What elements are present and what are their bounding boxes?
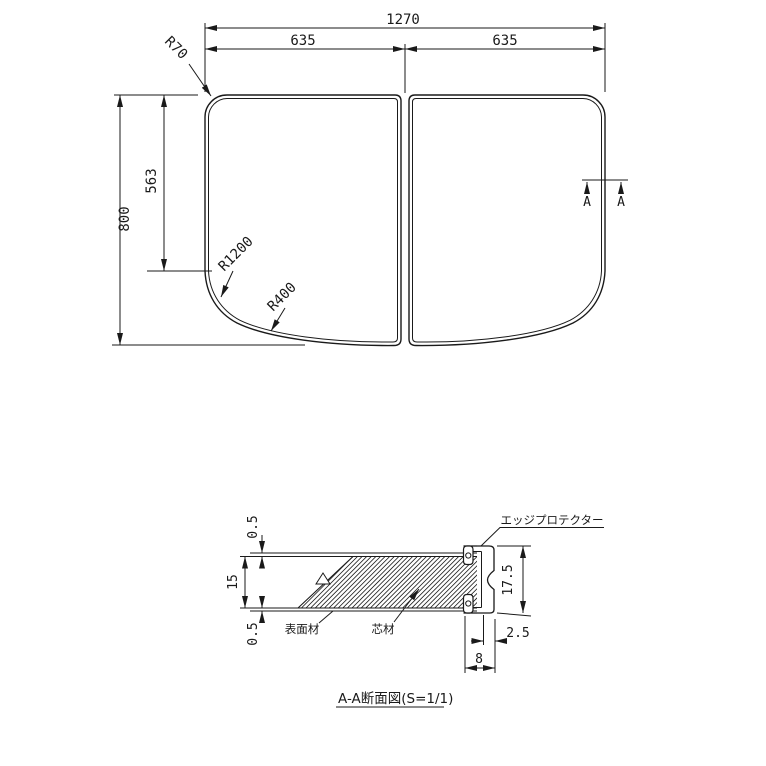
bottom-barb-curl	[466, 601, 471, 606]
dim-total-height: 800	[117, 206, 133, 231]
top-barb-curl	[466, 553, 471, 558]
dim-left-panel-width: 635	[290, 33, 315, 49]
label-surface-material: 表面材	[285, 622, 320, 636]
radius-label-r1200: R1200	[216, 234, 257, 275]
dim-total-width: 1270	[386, 12, 420, 28]
section-marker-a-right: A	[617, 195, 625, 210]
left-panel-outer-outline	[205, 95, 401, 346]
dim-right-panel-width: 635	[492, 33, 517, 49]
label-edge-protector: エッジプロテクター	[500, 513, 603, 527]
right-panel-outer-outline	[409, 95, 605, 346]
surface-finish-mark	[316, 573, 330, 584]
dim-straight-height: 563	[144, 168, 160, 193]
dim-protector-height: 17.5	[501, 564, 516, 595]
dim-surface-top: 0.5	[246, 515, 261, 538]
radius-label-r400: R400	[265, 280, 300, 315]
right-panel-inner-outline	[413, 99, 602, 343]
plan-view	[112, 23, 628, 346]
section-view	[240, 528, 620, 708]
section-leader-lines	[319, 528, 604, 708]
dim-protector-wall: 2.5	[506, 626, 529, 641]
dim-protector-width: 8	[475, 652, 483, 667]
label-core-material: 芯材	[372, 622, 395, 636]
technical-drawing-sheet: 1270 635 635 800 563 R70 R1200 R400 A A	[0, 0, 766, 766]
bathtub-lid-drawing: 1270 635 635 800 563 R70 R1200 R400 A A	[0, 0, 766, 766]
dim-core-thickness: 15	[226, 574, 241, 590]
radius-label-r70: R70	[161, 34, 190, 63]
core-hatch-pattern	[246, 542, 620, 622]
dim-surface-bottom: 0.5	[246, 622, 261, 645]
section-title: A-A断面図(S=1/1)	[338, 691, 453, 707]
edge-protector-body	[477, 546, 494, 613]
left-panel-inner-outline	[209, 99, 398, 343]
section-marker-a-left: A	[583, 195, 591, 210]
plan-dimension-lines	[120, 28, 621, 345]
plan-extension-lines	[112, 23, 628, 345]
